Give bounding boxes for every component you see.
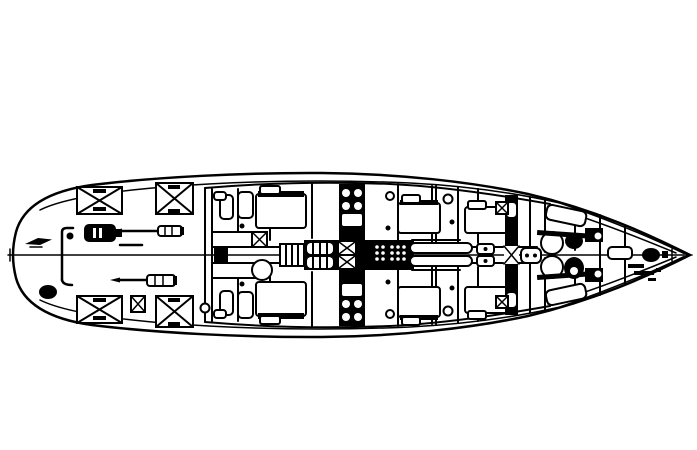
vent-stbd [214, 310, 226, 318]
small-deck-hatch [131, 296, 145, 312]
skylight-hatch-port-aft [77, 187, 122, 214]
skylight-hatch-stbd-fwd [156, 296, 193, 327]
berth-headboard [238, 192, 253, 218]
pillow [260, 186, 280, 194]
berth-headboard [238, 292, 253, 318]
hatch-x-port [496, 202, 508, 214]
fitting [521, 248, 541, 263]
stool-seat [252, 260, 272, 280]
boat-plan-svg [0, 0, 697, 450]
berth-stbd-mid [398, 287, 440, 325]
berth-port-mid [398, 195, 440, 233]
windlass-gypsy-stbd [585, 268, 603, 282]
bow-fitting [642, 248, 660, 262]
vent-port [214, 192, 226, 200]
stern-cleat [25, 238, 52, 247]
companionway-ladder [280, 240, 336, 270]
winch-handle-port [112, 226, 184, 245]
skylight-hatch-port-fwd [156, 183, 193, 214]
gas-tank [84, 224, 122, 242]
stern-fitting [39, 285, 57, 299]
deck-fill [201, 304, 210, 313]
windlass-gypsy-port [585, 228, 603, 242]
skylight-hatch-stbd-aft [77, 296, 122, 323]
yacht-deck-plan-drawing [0, 0, 697, 450]
chain-pipe [608, 247, 632, 259]
mast-step-fitting [214, 247, 228, 263]
berth-stbd-aft [220, 282, 306, 325]
berth [256, 282, 306, 316]
winch-handle-stbd [110, 275, 177, 286]
berth [256, 194, 306, 228]
boarding-davit [62, 228, 74, 285]
hatch-x-stbd [496, 296, 508, 308]
berth-port-aft [220, 186, 306, 229]
pillow [260, 316, 280, 324]
